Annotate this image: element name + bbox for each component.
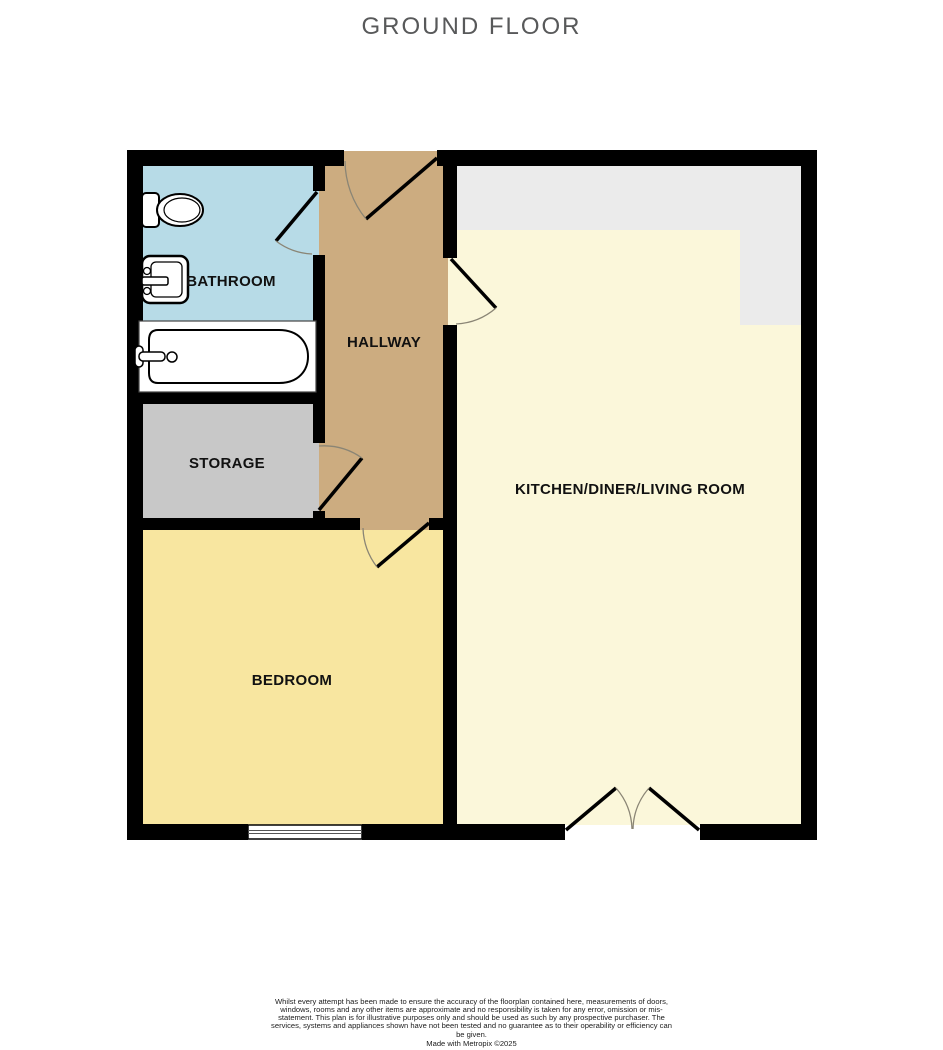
wall-segment (443, 150, 457, 258)
wall-segment (127, 518, 360, 530)
room-label-storage: STORAGE (189, 455, 265, 472)
wall-segment (127, 824, 248, 840)
floorplan-drawing: BATHROOM HALLWAY STORAGE BEDROOM KITCHEN… (0, 0, 943, 1050)
wall-segment (127, 150, 344, 166)
window-symbol (248, 825, 362, 839)
room-label-bathroom: BATHROOM (186, 273, 276, 290)
wall-segment (127, 150, 143, 840)
bathtub-symbol (135, 321, 316, 392)
floorplan-page: GROUND FLOOR (0, 0, 943, 1050)
footer: Whilst every attempt has been made to en… (0, 998, 943, 1048)
wall-segment (127, 392, 325, 404)
sink-symbol (142, 256, 188, 303)
toilet-symbol (142, 193, 203, 227)
room-label-bedroom: BEDROOM (252, 672, 332, 689)
wall-segment (437, 150, 817, 166)
wall-segment (801, 150, 817, 840)
wall-segment (443, 325, 457, 840)
disclaimer-text: Whilst every attempt has been made to en… (271, 998, 673, 1039)
room-label-hallway: HALLWAY (347, 334, 421, 351)
credit-text: Made with Metropix ©2025 (271, 1040, 673, 1048)
wall-segment (313, 150, 325, 191)
room-label-kitchen-diner-living: KITCHEN/DINER/LIVING ROOM (515, 481, 745, 498)
wall-segment (362, 824, 565, 840)
wall-segment (700, 824, 817, 840)
